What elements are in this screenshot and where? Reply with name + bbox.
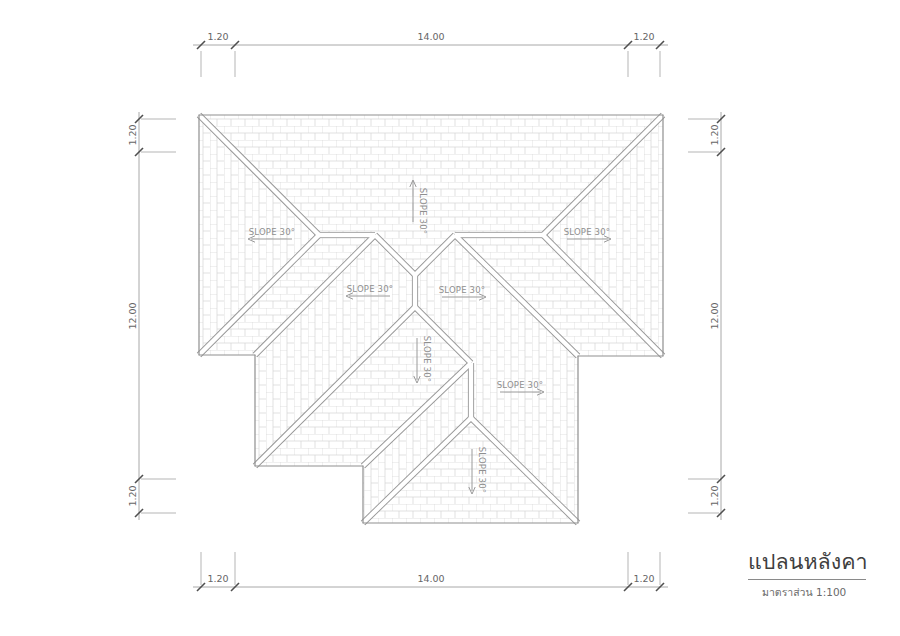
dimension-label: 1.20 — [633, 573, 654, 584]
dimension-label: 14.00 — [417, 573, 444, 584]
dimension-left: 1.2012.001.20 — [127, 112, 176, 520]
dimension-label: 1.20 — [709, 485, 720, 506]
slope-label-text: SLOPE 30° — [422, 336, 432, 383]
dimension-label: 1.20 — [127, 485, 138, 506]
slope-label-text: SLOPE 30° — [439, 285, 486, 295]
slope-label-text: SLOPE 30° — [347, 284, 394, 294]
slope-label-text: SLOPE 30° — [249, 227, 296, 237]
dimension-label: 12.00 — [127, 302, 138, 329]
title-block: แปลนหลังคา มาตราส่วน 1:100 — [748, 547, 878, 601]
roof-plan-drawing: 1.2014.001.201.2014.001.201.2012.001.201… — [0, 0, 900, 636]
slope-label-8: SLOPE 30° — [469, 447, 487, 494]
title-underline — [748, 579, 866, 580]
drawing-title: แปลนหลังคา — [748, 547, 878, 576]
dimension-label: 1.20 — [633, 31, 654, 42]
drawing-scale: มาตราส่วน 1:100 — [748, 584, 878, 601]
dimension-label: 1.20 — [127, 124, 138, 145]
dimension-label: 1.20 — [207, 573, 228, 584]
slope-label-text: SLOPE 30° — [497, 380, 544, 390]
dimension-label: 1.20 — [207, 31, 228, 42]
dimension-bottom: 1.2014.001.20 — [193, 552, 668, 591]
dimension-label: 14.00 — [417, 31, 444, 42]
dimension-right: 1.2012.001.20 — [688, 112, 725, 520]
dimension-label: 12.00 — [709, 302, 720, 329]
slope-label-text: SLOPE 30° — [477, 447, 487, 494]
slope-label-text: SLOPE 30° — [564, 227, 611, 237]
roof-plan-sheet: 1.2014.001.201.2014.001.201.2012.001.201… — [0, 0, 900, 636]
dimension-top: 1.2014.001.20 — [193, 31, 668, 77]
slope-label-text: SLOPE 30° — [418, 188, 428, 235]
dimension-label: 1.20 — [709, 124, 720, 145]
slope-label-6: SLOPE 30° — [414, 336, 432, 383]
